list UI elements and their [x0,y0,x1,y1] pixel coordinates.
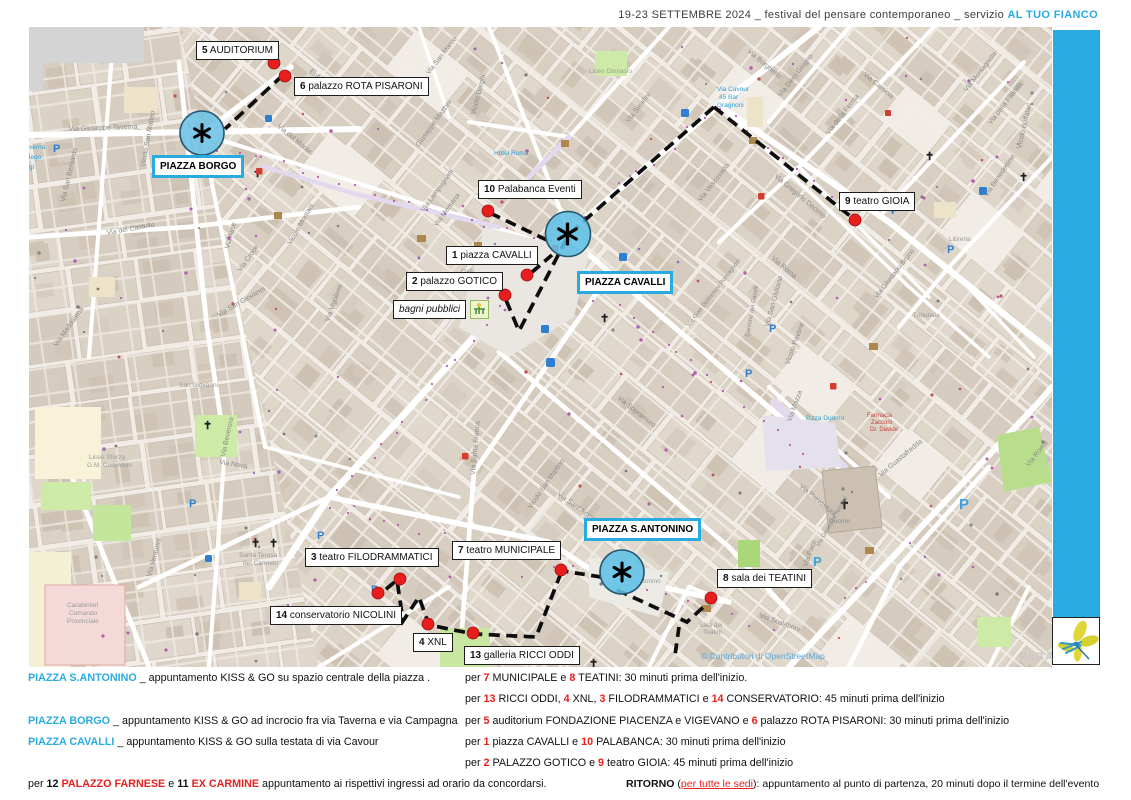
svg-text:© Contributori di OpenStreetMa: © Contributori di OpenStreetMap [701,651,825,661]
svg-text:G.M. Colombini: G.M. Colombini [87,462,132,469]
svg-text:lego: lego [29,154,42,161]
svg-text:45 Bar: 45 Bar [719,94,739,101]
svg-text:P: P [959,496,969,513]
svg-text:gi: gi [29,164,34,171]
svg-text:San Giovanni: San Giovanni [179,382,218,389]
svg-text:✝: ✝ [251,538,260,550]
svg-text:P: P [189,498,196,510]
svg-text:✝: ✝ [269,538,278,550]
svg-text:P.zza Duomo: P.zza Duomo [806,415,845,422]
svg-text:Teatini: Teatini [703,629,722,636]
svg-text:Sala dei: Sala dei [699,622,723,629]
svg-text:Gragnoni: Gragnoni [717,102,744,109]
svg-text:Comando: Comando [69,610,98,617]
svg-text:✝: ✝ [203,420,212,432]
svg-text:Liceo Ginnasio: Liceo Ginnasio [589,68,632,75]
svg-text:Via Cavour: Via Cavour [717,86,750,93]
svg-text:P: P [317,530,324,542]
svg-text:Hotel Roma: Hotel Roma [494,150,529,157]
svg-text:✝: ✝ [589,658,598,667]
svg-text:P: P [947,244,954,256]
svg-text:Farmacia: Farmacia [867,413,893,419]
svg-text:del Carmelo: del Carmelo [243,560,278,567]
svg-text:P: P [745,368,752,380]
svg-text:Libreria: Libreria [949,236,971,243]
svg-text:Dr. Davide: Dr. Davide [870,427,899,433]
svg-text:✝: ✝ [925,151,934,163]
svg-text:Tribunale: Tribunale [913,312,940,319]
svg-text:✝: ✝ [600,313,609,325]
svg-text:✝: ✝ [1019,172,1028,184]
svg-text:Provinciale: Provinciale [67,618,99,625]
svg-text:P: P [813,554,822,569]
svg-text:Liceo Sforza: Liceo Sforza [89,454,126,461]
svg-text:Carabinieri: Carabinieri [67,602,98,609]
svg-text:P: P [53,143,60,155]
svg-text:Zacconi: Zacconi [871,420,892,426]
svg-text:verna: verna [29,144,46,151]
svg-text:Santa Teresa: Santa Teresa [239,552,278,559]
